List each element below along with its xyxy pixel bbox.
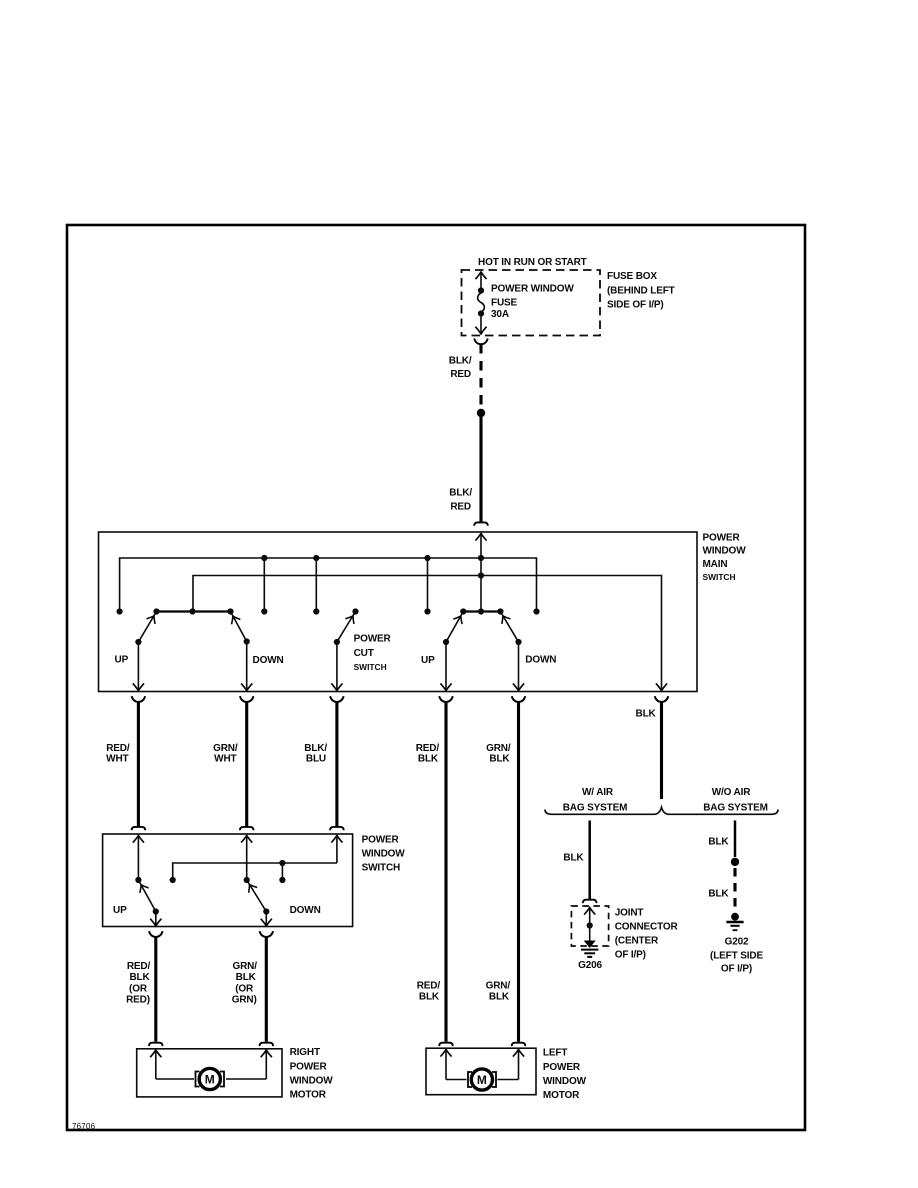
svg-text:HOT IN RUN OR START: HOT IN RUN OR START [478, 257, 587, 268]
svg-text:BLK/: BLK/ [449, 488, 472, 499]
svg-text:UP: UP [421, 655, 435, 666]
svg-text:GRN/: GRN/ [486, 743, 511, 754]
svg-text:BLK: BLK [489, 754, 510, 765]
svg-text:RED: RED [450, 502, 471, 513]
svg-text:WINDOW: WINDOW [703, 546, 747, 557]
svg-text:OF I/P): OF I/P) [721, 963, 752, 974]
svg-text:RED/: RED/ [416, 743, 440, 754]
svg-text:MAIN: MAIN [703, 559, 728, 570]
svg-text:FUSE: FUSE [491, 298, 518, 309]
svg-text:GRN/: GRN/ [232, 961, 257, 972]
svg-text:WINDOW: WINDOW [290, 1076, 334, 1087]
svg-text:M: M [205, 1072, 215, 1086]
svg-text:DOWN: DOWN [290, 905, 321, 916]
svg-text:POWER: POWER [362, 835, 400, 846]
svg-text:UP: UP [115, 655, 129, 666]
svg-text:CONNECTOR: CONNECTOR [615, 921, 679, 932]
svg-text:G202: G202 [725, 936, 749, 947]
svg-text:RIGHT: RIGHT [290, 1047, 320, 1058]
svg-text:BLK: BLK [563, 853, 584, 864]
svg-text:OF I/P): OF I/P) [615, 949, 646, 960]
svg-text:(LEFT SIDE: (LEFT SIDE [710, 950, 763, 961]
svg-text:UP: UP [113, 905, 127, 916]
svg-text:FUSE BOX: FUSE BOX [607, 271, 657, 282]
svg-text:POWER: POWER [290, 1061, 328, 1072]
svg-text:RED/: RED/ [127, 961, 151, 972]
svg-text:BAG SYSTEM: BAG SYSTEM [563, 803, 628, 814]
svg-text:WHT: WHT [106, 754, 128, 765]
svg-text:WINDOW: WINDOW [543, 1076, 587, 1087]
svg-text:BLK: BLK [636, 709, 657, 720]
svg-text:POWER: POWER [354, 633, 392, 644]
svg-text:(BEHIND LEFT: (BEHIND LEFT [607, 285, 675, 296]
svg-text:BLK: BLK [419, 991, 440, 1002]
svg-text:CUT: CUT [354, 648, 374, 659]
svg-text:30A: 30A [491, 309, 509, 320]
svg-text:SIDE OF I/P): SIDE OF I/P) [607, 300, 664, 311]
svg-text:POWER: POWER [703, 533, 741, 544]
svg-text:DOWN: DOWN [525, 655, 556, 666]
svg-text:W/ AIR: W/ AIR [582, 787, 614, 798]
svg-text:LEFT: LEFT [543, 1047, 567, 1058]
svg-text:(CENTER: (CENTER [615, 935, 659, 946]
svg-text:BLK/: BLK/ [449, 356, 472, 367]
svg-text:JOINT: JOINT [615, 907, 644, 918]
svg-text:BLK: BLK [489, 991, 510, 1002]
svg-text:76706: 76706 [72, 1122, 96, 1131]
svg-text:RED: RED [450, 369, 471, 380]
svg-text:POWER WINDOW: POWER WINDOW [491, 284, 574, 295]
svg-text:(OR: (OR [129, 984, 148, 995]
svg-text:BLK/: BLK/ [304, 743, 327, 754]
svg-text:SWITCH: SWITCH [354, 662, 387, 672]
svg-text:GRN/: GRN/ [486, 981, 511, 992]
svg-text:RED/: RED/ [106, 743, 130, 754]
svg-text:BLK: BLK [236, 972, 257, 983]
svg-text:W/O AIR: W/O AIR [712, 787, 752, 798]
svg-text:MOTOR: MOTOR [543, 1090, 580, 1101]
svg-text:GRN): GRN) [232, 995, 257, 1006]
svg-text:BLK: BLK [708, 836, 729, 847]
svg-text:BAG SYSTEM: BAG SYSTEM [703, 803, 768, 814]
svg-text:MOTOR: MOTOR [290, 1090, 327, 1101]
svg-text:G206: G206 [578, 960, 602, 971]
svg-text:SWITCH: SWITCH [703, 572, 736, 582]
svg-text:BLK: BLK [708, 888, 729, 899]
svg-text:POWER: POWER [543, 1062, 581, 1073]
svg-text:SWITCH: SWITCH [362, 863, 401, 874]
svg-text:M: M [477, 1073, 487, 1087]
svg-text:(OR: (OR [235, 984, 254, 995]
svg-text:WINDOW: WINDOW [362, 849, 406, 860]
svg-text:WHT: WHT [214, 754, 236, 765]
svg-text:RED): RED) [126, 995, 150, 1006]
svg-text:DOWN: DOWN [253, 655, 284, 666]
svg-text:RED/: RED/ [417, 981, 441, 992]
svg-text:GRN/: GRN/ [213, 743, 238, 754]
svg-text:BLU: BLU [306, 754, 326, 765]
svg-text:BLK: BLK [418, 754, 439, 765]
svg-text:BLK: BLK [129, 972, 150, 983]
